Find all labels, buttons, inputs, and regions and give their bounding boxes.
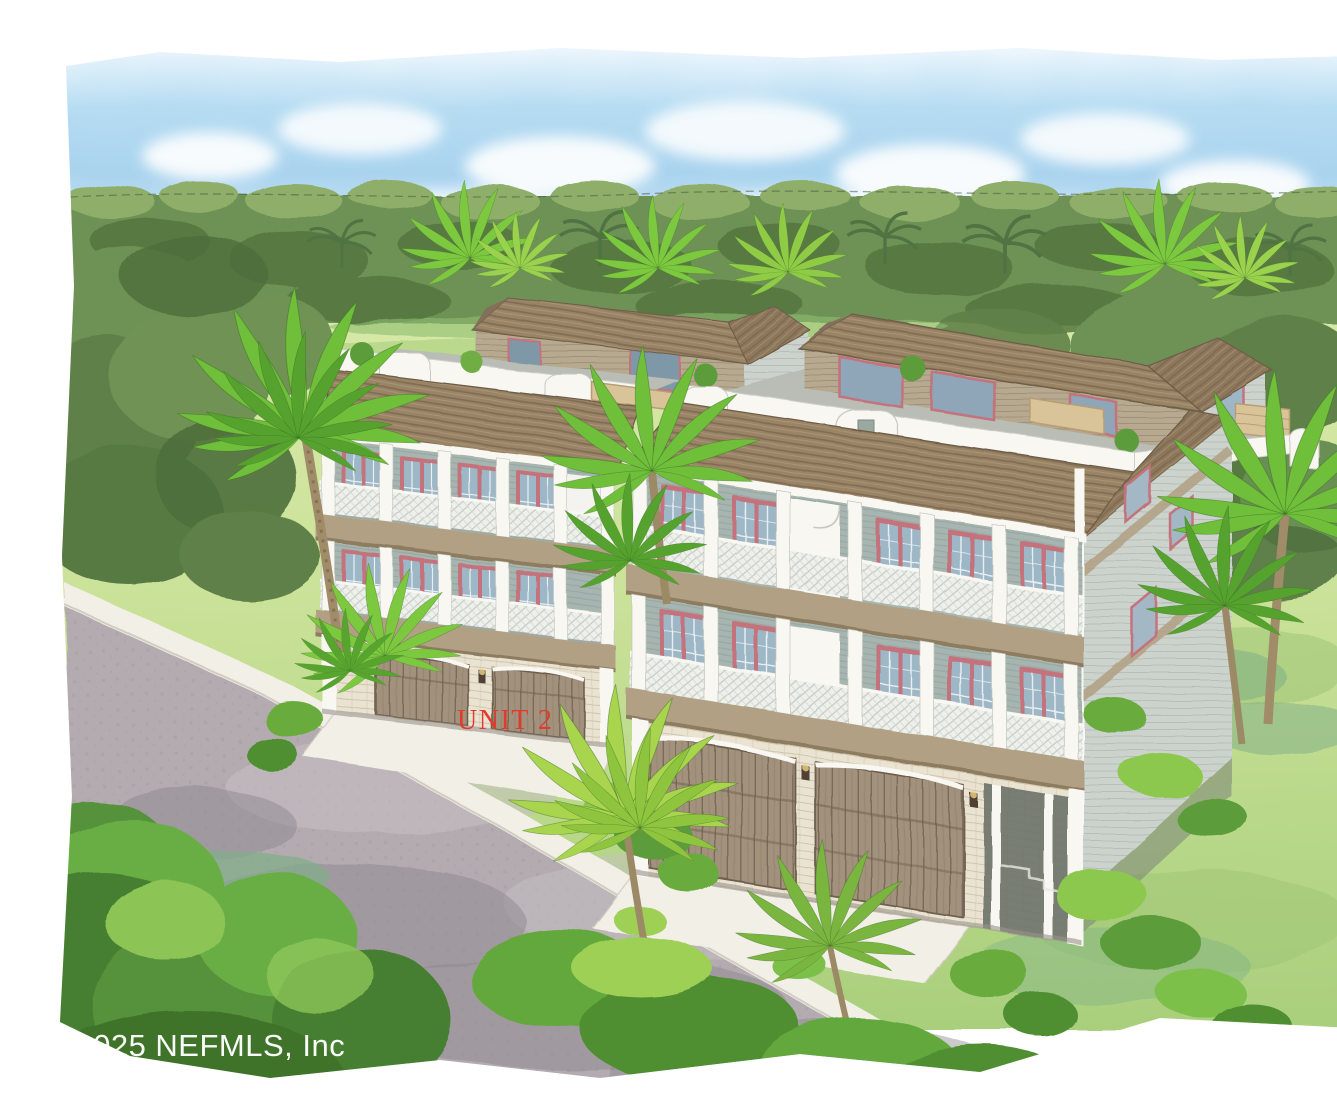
painted-area [40,46,1337,1096]
deck-planter [899,355,925,381]
facade-left [314,430,616,749]
deck-planter [694,364,718,388]
rendering-canvas [40,16,1337,1096]
open-stilt-bay [984,783,1082,945]
deck-planter [1114,428,1138,452]
deck-planter [461,351,483,373]
watercolor-rendering: UNIT 2 ©2025 NEFMLS, Inc [40,16,1337,1096]
